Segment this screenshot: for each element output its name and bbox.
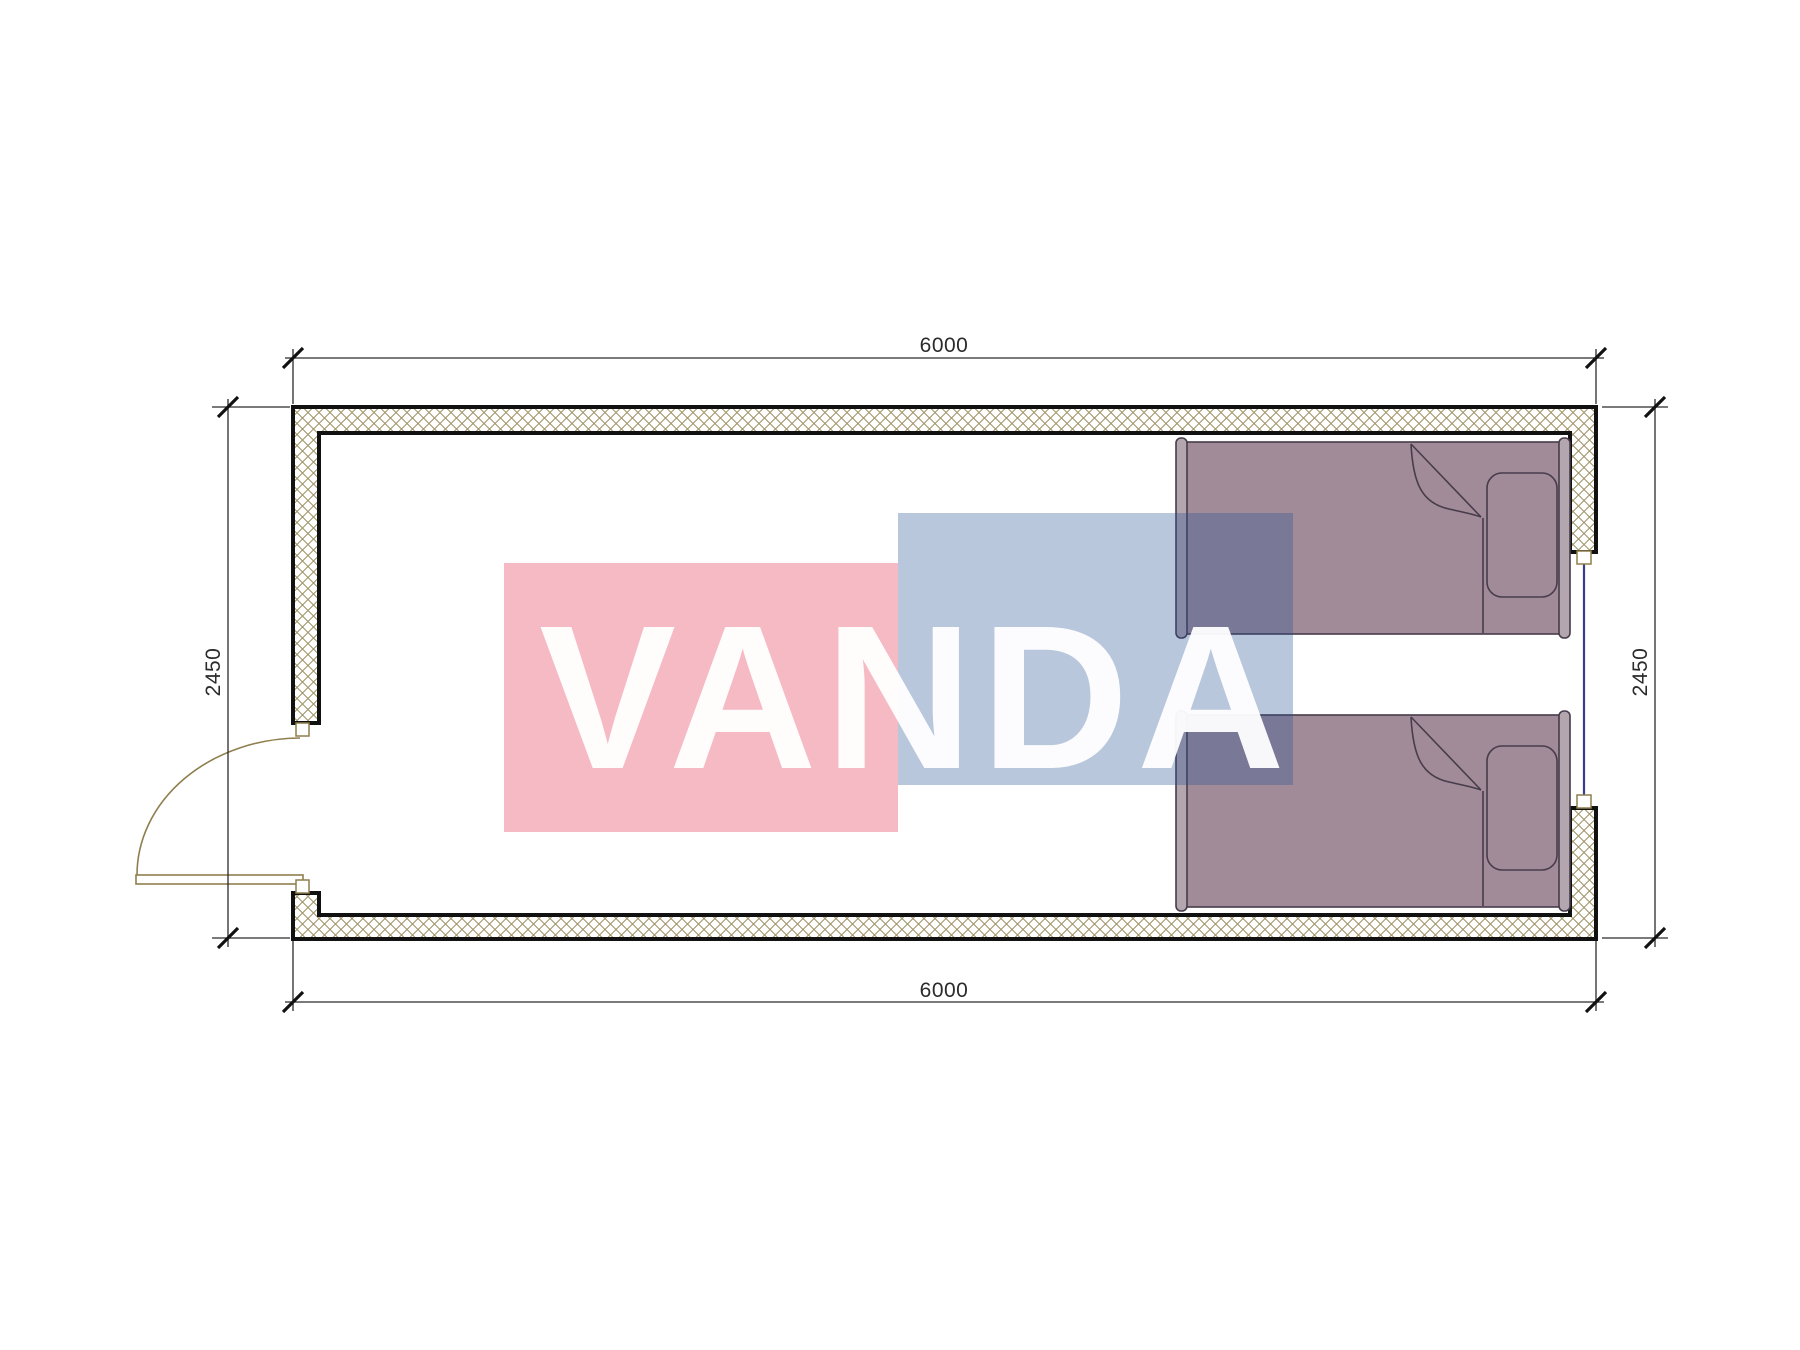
- dimension-bottom: 6000: [283, 941, 1606, 1012]
- door-frame-top: [296, 723, 309, 736]
- bed-pillow: [1487, 746, 1557, 870]
- floor-plan-page: 6000 6000 2450 2450 VANDA: [0, 0, 1800, 1350]
- dimension-left: 2450: [202, 397, 290, 948]
- dimension-top: 6000: [283, 334, 1606, 404]
- dim-label-left: 2450: [202, 648, 225, 697]
- window-frame-top: [1577, 551, 1591, 564]
- watermark-text: VANDA: [539, 583, 1293, 812]
- dim-label-bottom: 6000: [920, 979, 969, 1002]
- entry-door: [136, 723, 309, 893]
- door-leaf: [136, 875, 303, 884]
- door-frame-bottom: [296, 880, 309, 893]
- watermark: VANDA: [504, 513, 1293, 832]
- dimension-right: 2450: [1602, 397, 1668, 948]
- window-frame-bottom: [1577, 795, 1591, 808]
- bed-pillow: [1487, 473, 1557, 597]
- bed-footboard: [1559, 711, 1570, 911]
- door-opening: [290, 722, 322, 894]
- door-swing-arc: [137, 738, 300, 875]
- floor-plan-canvas: 6000 6000 2450 2450 VANDA: [0, 0, 1800, 1350]
- dim-label-right: 2450: [1629, 648, 1652, 697]
- dim-label-top: 6000: [920, 334, 969, 357]
- bed-footboard: [1559, 438, 1570, 638]
